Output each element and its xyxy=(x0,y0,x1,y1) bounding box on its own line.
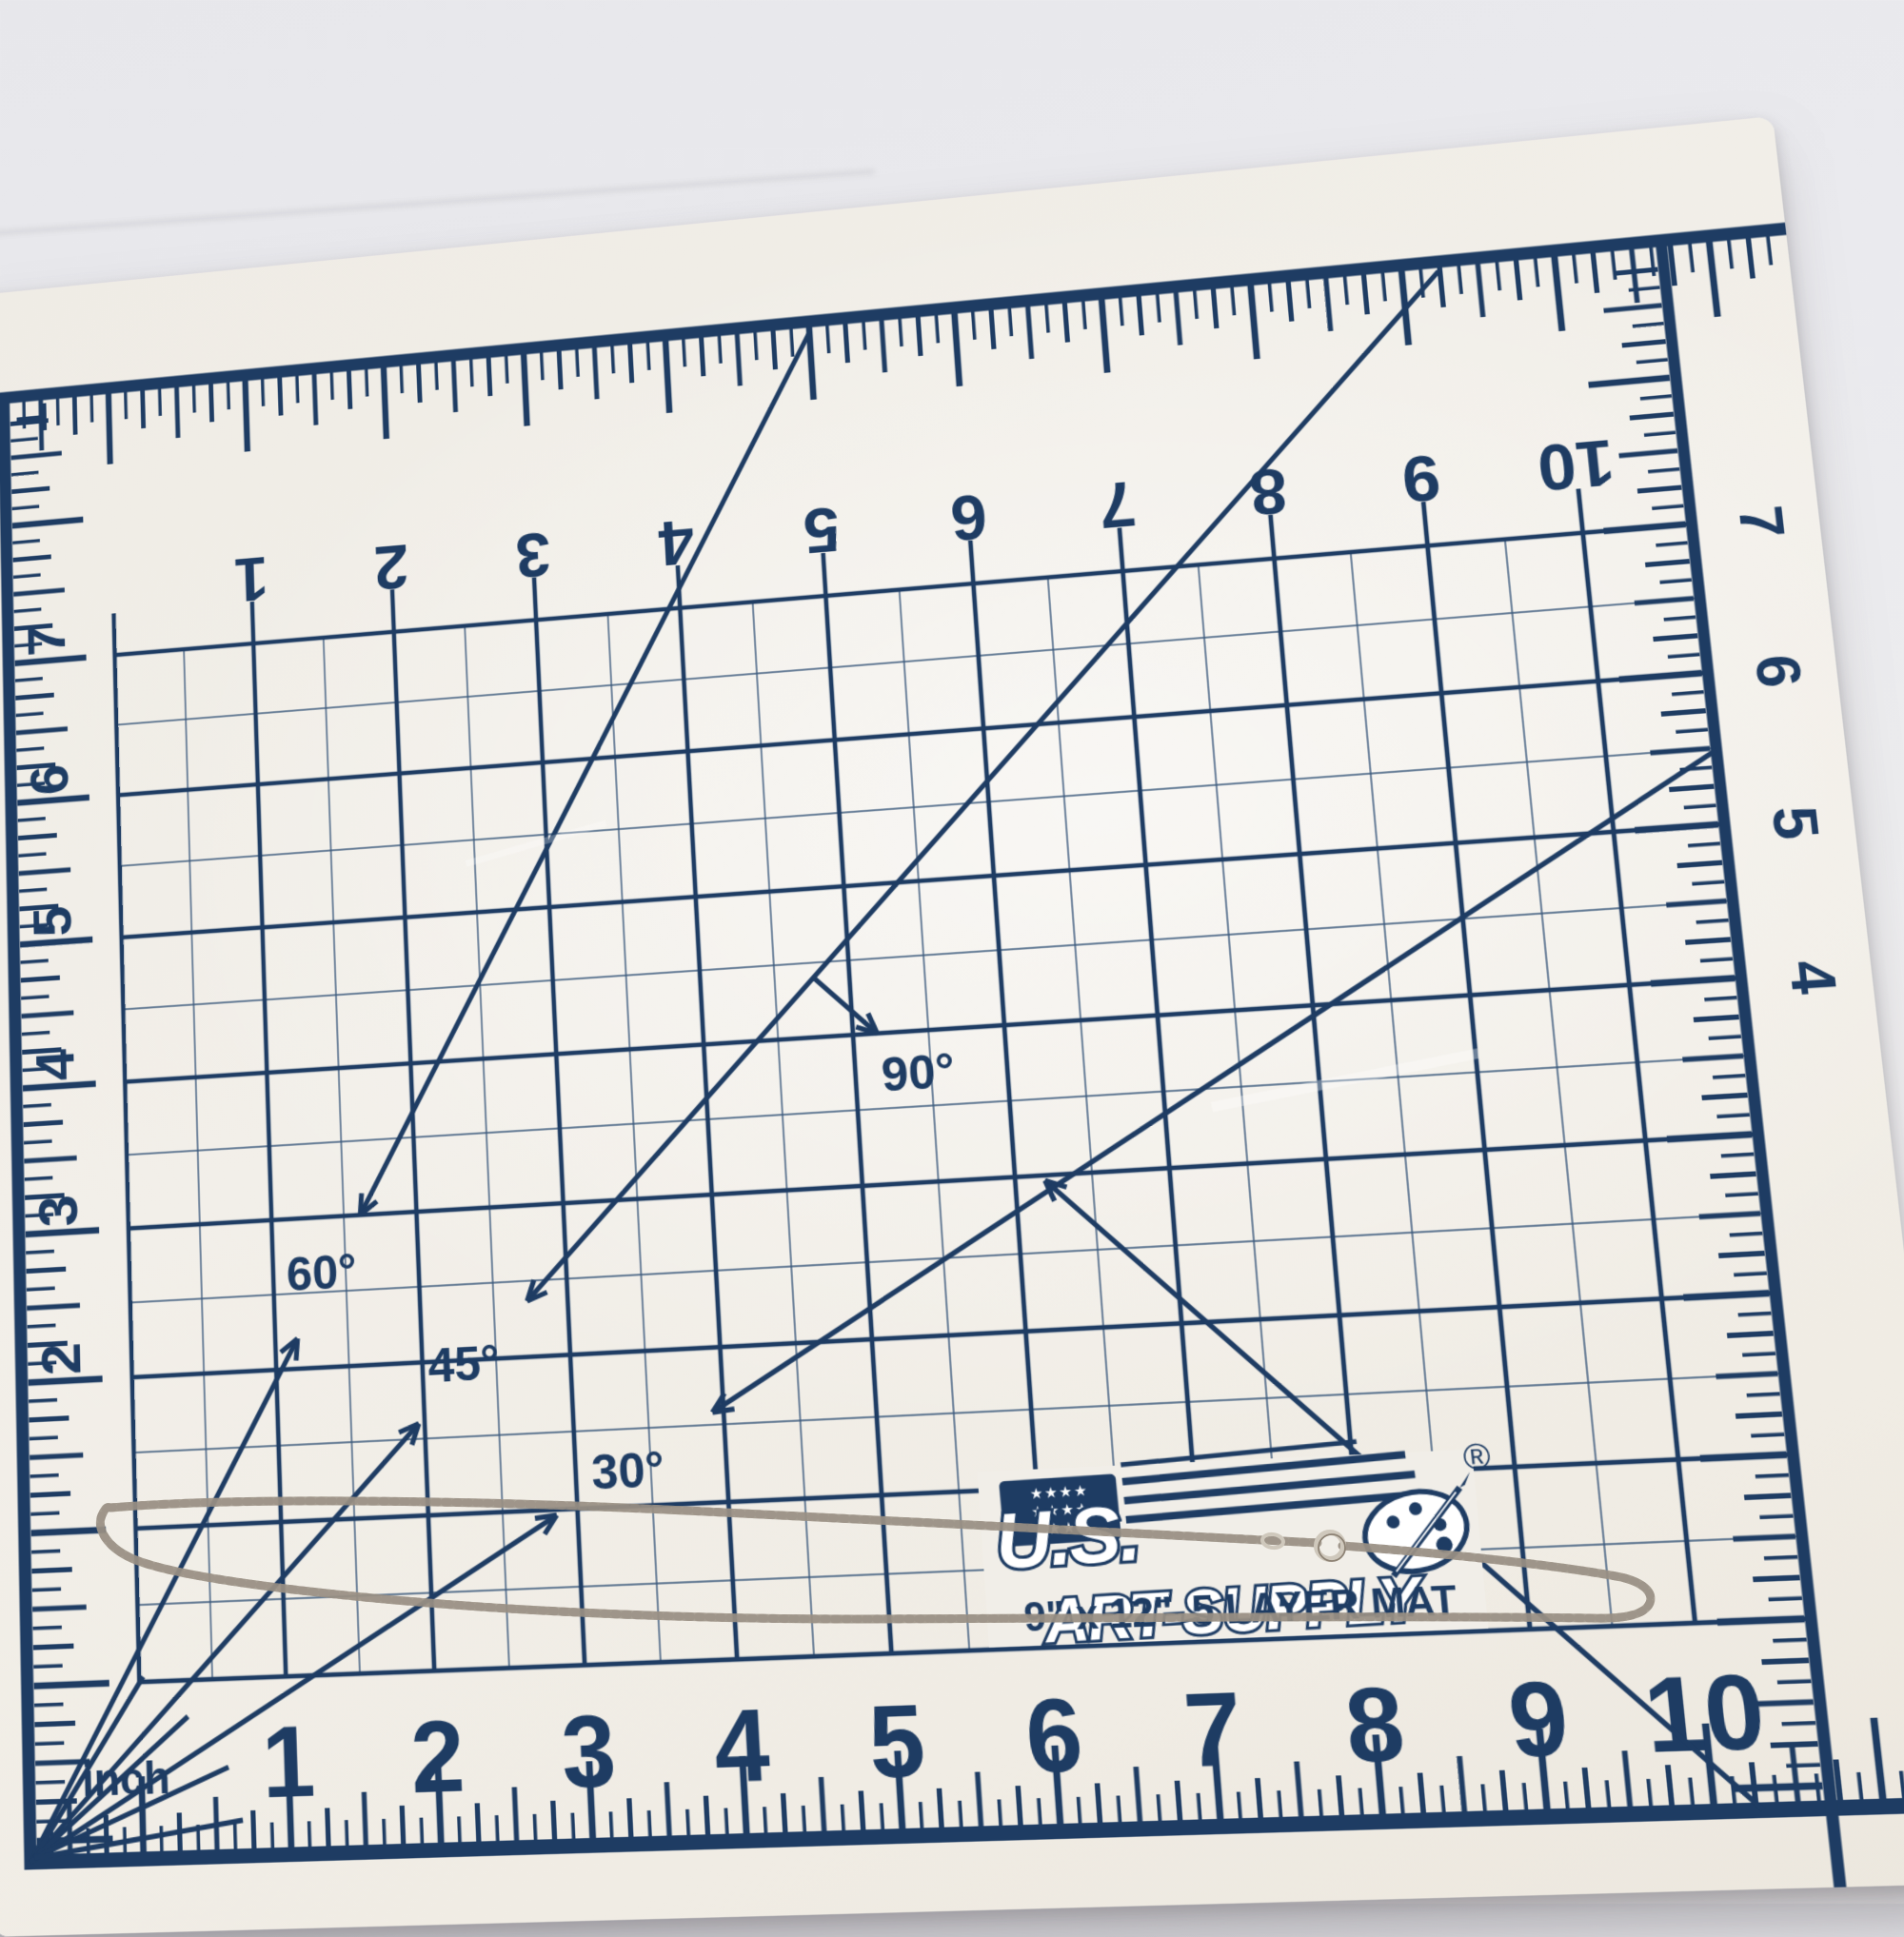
svg-text:inch: inch xyxy=(82,1752,171,1807)
svg-text:U.S.: U.S. xyxy=(992,1489,1142,1586)
svg-text:3: 3 xyxy=(28,1194,89,1229)
svg-text:5: 5 xyxy=(802,493,842,566)
svg-text:5: 5 xyxy=(865,1684,928,1800)
svg-text:4: 4 xyxy=(711,1690,772,1806)
svg-text:45°: 45° xyxy=(427,1335,501,1393)
svg-text:30°: 30° xyxy=(590,1442,665,1501)
svg-text:7: 7 xyxy=(1180,1672,1246,1790)
left-scale-numbers: 765432 xyxy=(17,623,92,1376)
svg-text:7: 7 xyxy=(1725,504,1797,541)
svg-text:6: 6 xyxy=(20,762,80,798)
svg-text:9: 9 xyxy=(1504,1660,1574,1780)
mat-printed-design: 1234567891012345678910765432765460°45°30… xyxy=(0,116,1904,1937)
svg-text:60°: 60° xyxy=(286,1244,358,1302)
right-scale-numbers: 7654 xyxy=(1725,504,1850,998)
svg-text:7: 7 xyxy=(17,623,77,658)
photo-scene: { "scene": { "backdrop_color": "#eaeaee"… xyxy=(0,0,1904,1904)
top-ruler-ticks xyxy=(24,236,1776,472)
grid-half-lines xyxy=(114,524,1811,1682)
svg-text:6: 6 xyxy=(1741,652,1814,690)
svg-text:2: 2 xyxy=(30,1341,92,1376)
svg-text:2: 2 xyxy=(373,530,410,602)
svg-text:9" x 12": 9" x 12" xyxy=(1022,1591,1175,1641)
inch-label: inch xyxy=(82,1752,171,1807)
mat-scuffs xyxy=(464,757,1483,1156)
svg-text:8: 8 xyxy=(1341,1666,1409,1785)
grid-inch-lines xyxy=(113,480,1811,1682)
svg-text:4: 4 xyxy=(25,1047,86,1083)
svg-text:®: ® xyxy=(1461,1436,1493,1478)
svg-text:1: 1 xyxy=(233,543,269,614)
svg-text:1: 1 xyxy=(261,1706,317,1819)
cutting-mat: 1234567891012345678910765432765460°45°30… xyxy=(0,116,1904,1937)
svg-text:5: 5 xyxy=(1758,804,1832,842)
svg-text:4: 4 xyxy=(1775,959,1850,998)
svg-text:5: 5 xyxy=(23,904,84,939)
svg-text:7: 7 xyxy=(1097,467,1139,542)
svg-text:6: 6 xyxy=(948,480,989,553)
svg-text:6: 6 xyxy=(1022,1678,1087,1795)
svg-text:9: 9 xyxy=(1399,441,1444,515)
svg-text:2: 2 xyxy=(409,1700,467,1814)
svg-text:3: 3 xyxy=(514,518,552,590)
svg-text:10: 10 xyxy=(1535,425,1618,504)
svg-text:90°: 90° xyxy=(880,1044,957,1103)
svg-text:3: 3 xyxy=(559,1695,618,1810)
